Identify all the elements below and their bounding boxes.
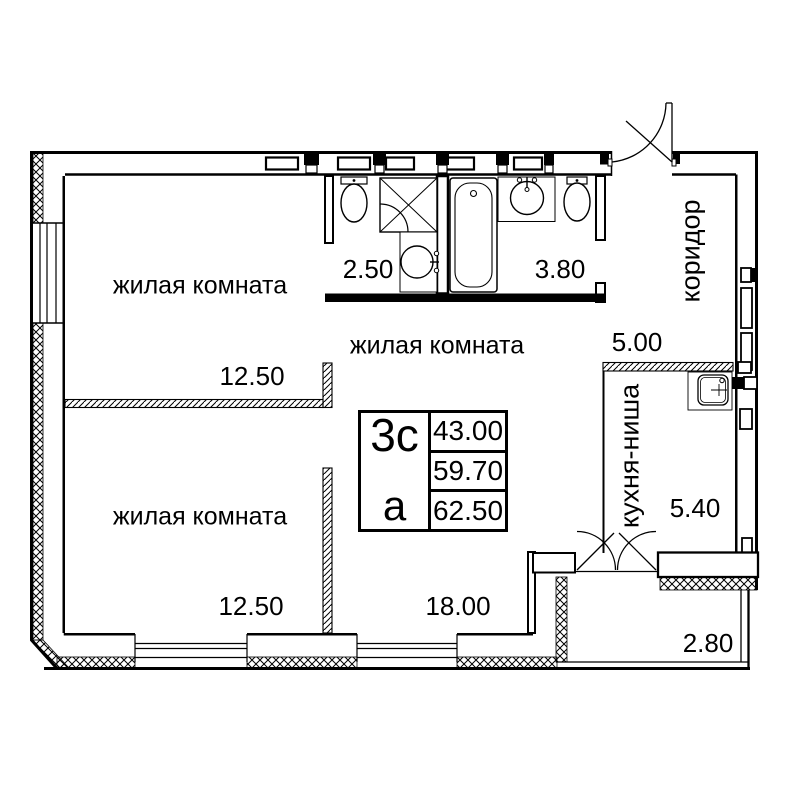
legend-value-1: 43.00 bbox=[431, 413, 505, 453]
room-label-corridor: коридор bbox=[678, 199, 705, 302]
room-label-living-top: жилая комната bbox=[113, 274, 287, 299]
room-area-bath-small: 2.50 bbox=[343, 256, 394, 282]
room-area-corridor: 5.00 bbox=[612, 329, 663, 355]
window-bottom-left bbox=[135, 634, 247, 662]
floor-plan-drawing bbox=[0, 0, 800, 800]
bathtub-symbol bbox=[450, 178, 497, 292]
apartment-variant-letter: а bbox=[383, 487, 406, 525]
washbasin-symbol bbox=[498, 177, 555, 222]
room-area-living-mid: 18.00 bbox=[425, 593, 490, 619]
toilet-symbol bbox=[341, 177, 367, 222]
ventilation-shafts-top bbox=[266, 152, 554, 173]
room-area-balcony: 2.80 bbox=[683, 630, 734, 656]
legend-value-3: 62.50 bbox=[431, 492, 505, 529]
legend-value-2: 59.70 bbox=[431, 453, 505, 493]
shower-symbol bbox=[380, 178, 437, 232]
legend-values-column: 43.00 59.70 62.50 bbox=[431, 413, 505, 529]
room-area-living-top: 12.50 bbox=[219, 363, 284, 389]
apartment-legend: 3с а 43.00 59.70 62.50 bbox=[358, 410, 508, 532]
floor-plan: жилая комната 12.50 жилая комната 18.00 … bbox=[0, 0, 800, 800]
room-area-bath-large: 3.80 bbox=[535, 256, 586, 282]
window-bottom-mid bbox=[357, 634, 457, 662]
toilet-symbol bbox=[564, 177, 590, 221]
balcony-door-symbol bbox=[575, 532, 658, 573]
kitchen-sink-symbol bbox=[688, 372, 732, 410]
window-left bbox=[32, 223, 64, 323]
room-label-living-mid: жилая комната bbox=[350, 334, 524, 359]
room-label-living-bottom: жилая комната bbox=[113, 505, 287, 530]
apartment-type-code: 3с bbox=[370, 414, 419, 458]
room-area-living-bottom: 12.50 bbox=[218, 593, 283, 619]
legend-type-column: 3с а bbox=[361, 413, 431, 529]
entrance-door-symbol bbox=[600, 103, 680, 176]
room-area-kitchen-niche: 5.40 bbox=[670, 495, 721, 521]
washbasin-symbol bbox=[400, 232, 439, 292]
room-label-kitchen-niche: кухня-ниша bbox=[617, 384, 644, 528]
